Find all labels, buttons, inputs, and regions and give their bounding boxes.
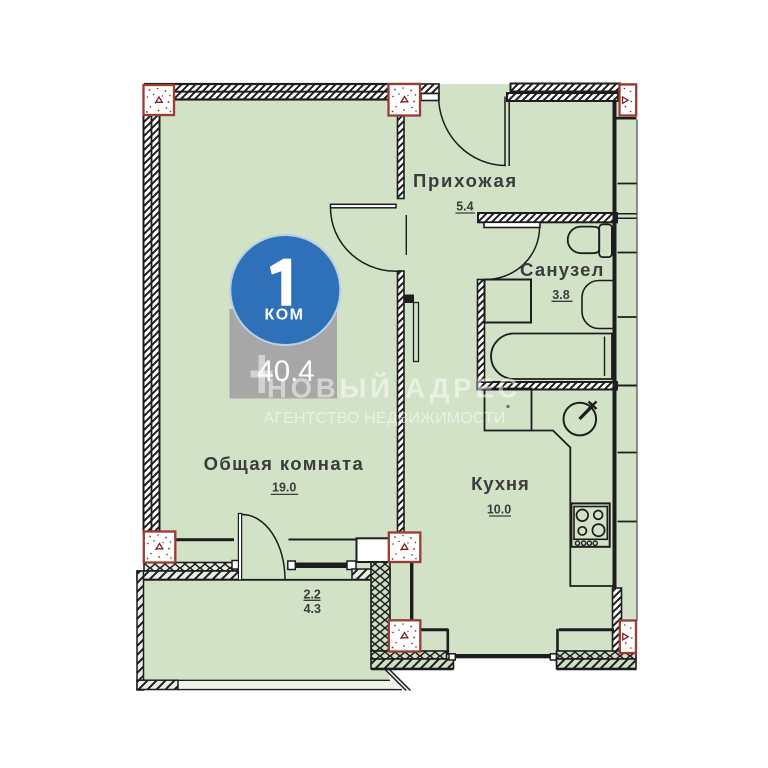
svg-text:НОВЫЙ АДРЕС: НОВЫЙ АДРЕС [267, 373, 521, 404]
svg-text:2.2: 2.2 [304, 587, 321, 601]
svg-text:Общая комната: Общая комната [204, 453, 365, 474]
svg-text:Прихожая: Прихожая [413, 170, 518, 191]
svg-text:19.0: 19.0 [272, 481, 296, 495]
svg-text:КОМ: КОМ [264, 307, 304, 324]
svg-text:10.0: 10.0 [487, 503, 511, 517]
svg-text:3.8: 3.8 [552, 288, 569, 302]
svg-text:АГЕНТСТВО НЕДВИЖИМОСТИ: АГЕНТСТВО НЕДВИЖИМОСТИ [264, 410, 506, 427]
svg-text:Санузел: Санузел [520, 259, 605, 280]
svg-text:Кухня: Кухня [471, 473, 530, 494]
svg-text:4.3: 4.3 [304, 602, 321, 616]
svg-text:5.4: 5.4 [456, 200, 473, 214]
